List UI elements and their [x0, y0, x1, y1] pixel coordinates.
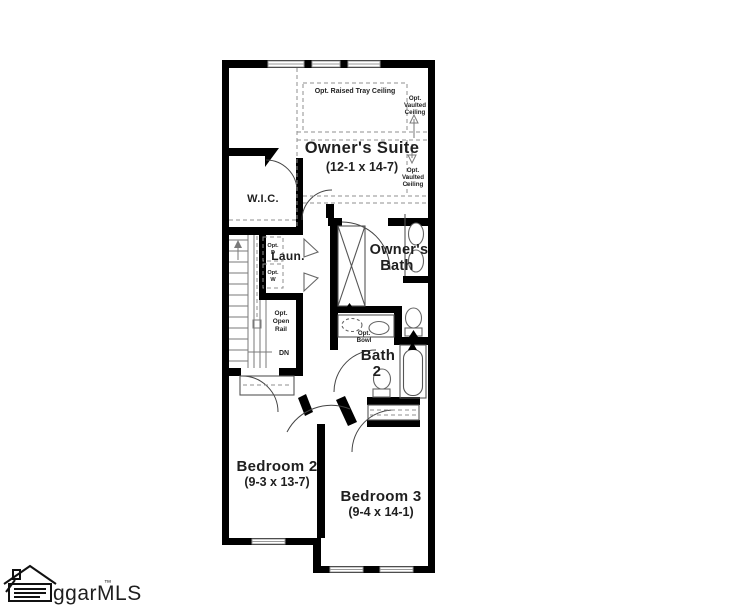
down-label: DN	[279, 350, 289, 357]
bedroom2-label: Bedroom 2	[236, 458, 317, 475]
opt-washer-label: Opt.	[267, 270, 279, 276]
floor-plan-drawing: Opt. Raised Tray Ceiling Opt. Vaulted Ce…	[0, 0, 738, 605]
linen-shelves	[368, 405, 419, 420]
suite-door-jamb	[326, 204, 334, 218]
wic-door-arc	[266, 160, 297, 191]
floor-plan: Opt. Raised Tray Ceiling Opt. Vaulted Ce…	[0, 0, 738, 605]
window	[312, 61, 340, 67]
svg-text:Vaulted: Vaulted	[404, 102, 426, 109]
vaulted-upper-label: Opt.	[409, 95, 422, 102]
svg-text:Ceiling: Ceiling	[403, 181, 424, 188]
window	[252, 539, 285, 544]
vaulted-lower-label: Opt.	[407, 167, 420, 174]
mls-watermark: ggarMLS ™	[4, 566, 142, 605]
svg-text:Rail: Rail	[275, 326, 287, 333]
opt-dryer-label: Opt.	[267, 243, 279, 249]
watermark-tm: ™	[104, 578, 112, 587]
house-logo-icon	[4, 566, 56, 601]
bedroom2-dims: (9-3 x 13-7)	[244, 475, 309, 489]
window	[268, 61, 304, 67]
svg-text:D: D	[271, 250, 275, 256]
owners-bath-label: Owner's	[370, 242, 429, 258]
svg-text:W: W	[270, 277, 276, 283]
open-rail-label: Opt.	[275, 310, 288, 317]
watermark-text: ggarMLS	[53, 582, 142, 605]
window	[348, 61, 380, 67]
window	[380, 567, 413, 572]
wic-label: W.I.C.	[247, 193, 279, 205]
bath2-label: Bath	[361, 347, 396, 364]
owners-suite-dims: (12-1 x 14-7)	[326, 160, 398, 174]
window	[330, 567, 363, 572]
tray-ceiling-label: Opt. Raised Tray Ceiling	[315, 88, 396, 95]
toilet-icon	[405, 308, 422, 337]
svg-text:Bath: Bath	[380, 258, 413, 274]
arrow-up-icon	[410, 115, 418, 138]
opt-bowl-label: Opt.	[358, 330, 371, 337]
bedroom3-dims: (9-4 x 14-1)	[348, 505, 413, 519]
svg-text:Vaulted: Vaulted	[402, 174, 424, 181]
laundry-bifold-door	[304, 273, 318, 291]
closet-shelf	[240, 376, 294, 395]
stairs-up-arrow-icon	[234, 240, 242, 260]
bathtub-icon	[400, 342, 426, 398]
closet-door-arc	[242, 376, 278, 412]
shower-icon	[338, 226, 365, 312]
svg-text:Open: Open	[273, 318, 290, 325]
laundry-bifold-door	[304, 239, 318, 257]
bedroom3-door-arc	[352, 410, 394, 452]
owners-suite-label: Owner's Suite	[305, 139, 420, 157]
svg-text:2: 2	[373, 363, 382, 380]
bedroom3-label: Bedroom 3	[340, 488, 421, 505]
laundry-label: Laun.	[271, 249, 305, 263]
bedroom3-door-jamb	[336, 396, 357, 426]
svg-text:Bowl: Bowl	[357, 337, 372, 344]
svg-text:Ceiling: Ceiling	[405, 109, 426, 116]
